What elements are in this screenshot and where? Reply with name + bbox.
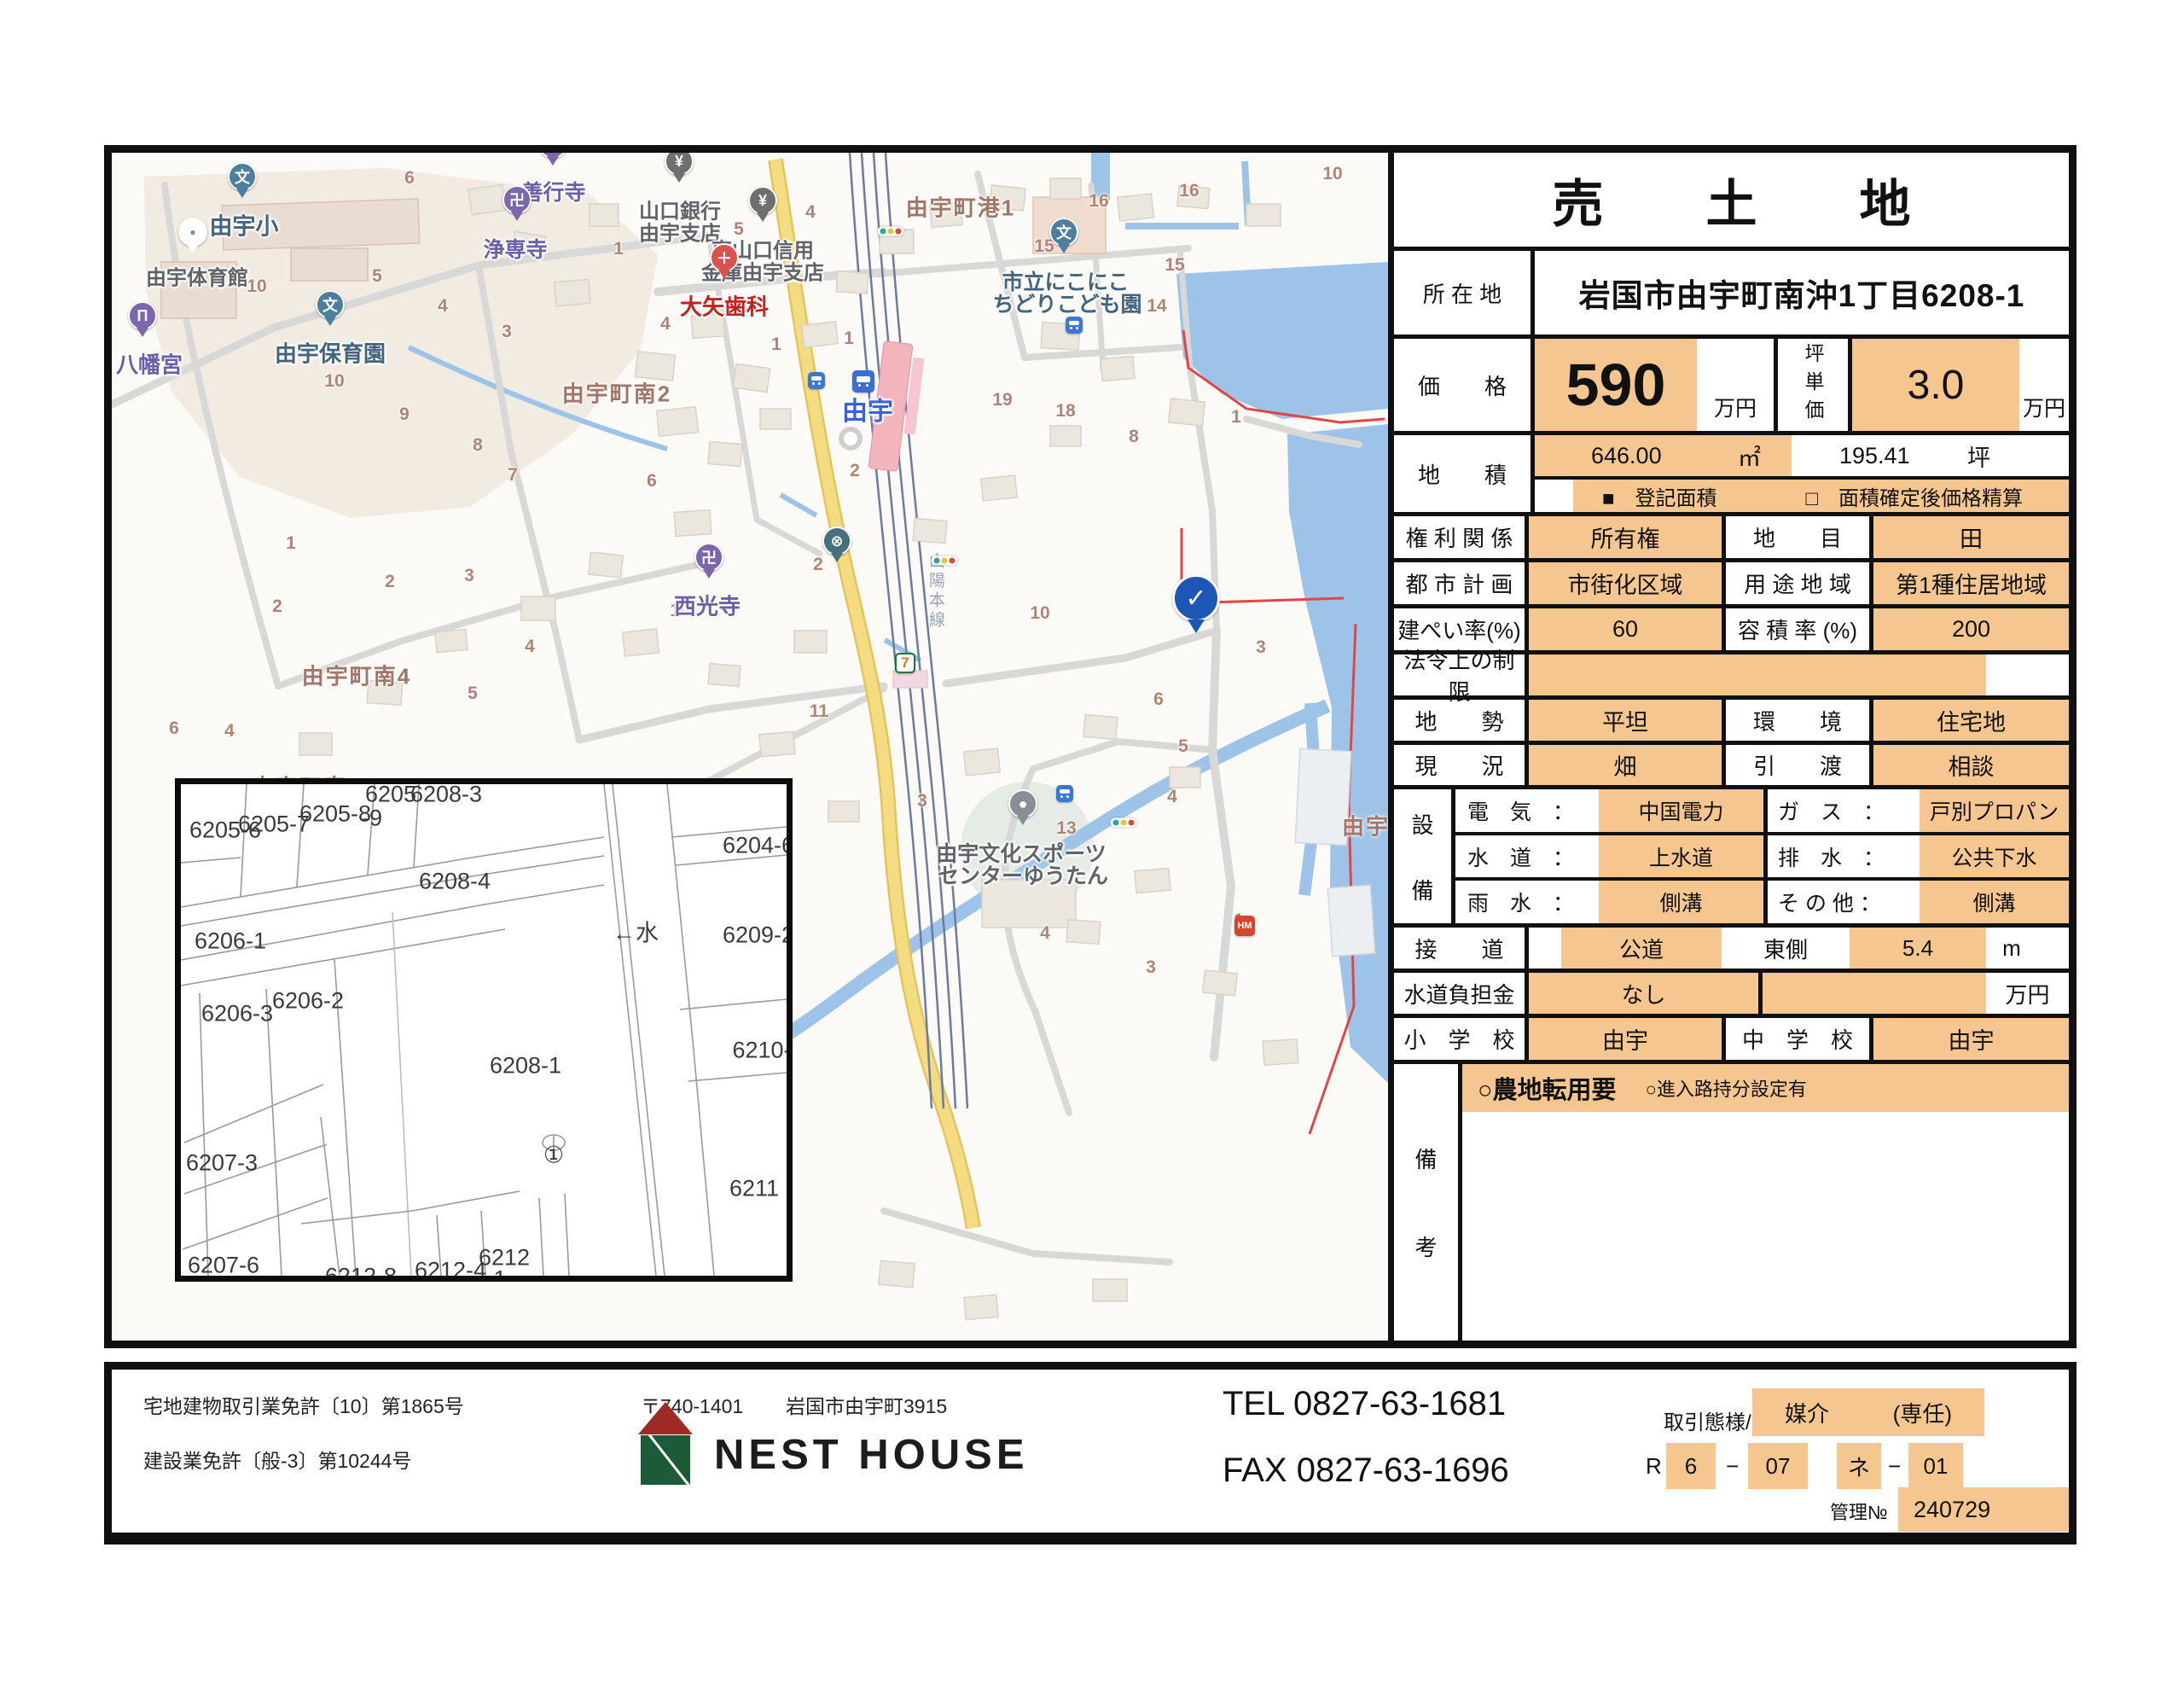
row-road: 接 道 公道 東側 5.4 m: [1394, 923, 2069, 969]
map-block-number: 10: [1322, 164, 1342, 184]
rights-value: 所有権: [1529, 516, 1722, 558]
map-block-number: 1: [1231, 407, 1241, 428]
poi-label: 由宇保育園: [275, 337, 386, 369]
utility-row-water: 水 道 ： 上水道 排 水 ： 公共下水: [1455, 832, 2069, 878]
map-block-number: 1: [771, 334, 781, 355]
parcel-number-label: 6211: [729, 1176, 779, 1202]
bus-stop-icon: [808, 372, 825, 389]
map-block-number: 4: [805, 202, 816, 223]
deal-type: 媒介: [1785, 1397, 1829, 1428]
map-block-number: 18: [1055, 401, 1075, 422]
poi-label: 由宇支店: [639, 217, 721, 247]
law-value: [1529, 654, 1986, 695]
map-block-number: 16: [1179, 181, 1199, 201]
deal-type-label: 取引態様/: [1664, 1405, 1751, 1435]
row-utilities: 設備 電 気 ： 中国電力 ガ ス ： 戸別プロパン 水 道 ： 上水道 排 水…: [1394, 785, 2069, 923]
juniorhigh-value: 由宇: [1873, 1018, 2069, 1060]
elementary-value: 由宇: [1529, 1018, 1722, 1060]
traffic-light-icon: [878, 227, 904, 236]
map-block-number: 10: [1030, 603, 1049, 624]
code-r: R: [1646, 1453, 1662, 1480]
parcel-number-label: ←水: [613, 915, 659, 948]
terrain-label: 地 勢: [1394, 700, 1529, 741]
map-block-number: 1: [844, 329, 854, 349]
poi-label: 大矢歯科: [680, 290, 769, 322]
code-month: 07: [1748, 1443, 1808, 1489]
utility-row-electric: 電 気 ： 中国電力 ガ ス ： 戸別プロパン: [1455, 789, 2069, 832]
status-value: 畑: [1529, 745, 1722, 785]
fee-label: 水道負担金: [1394, 973, 1529, 1014]
drainage-value: 公共下水: [1920, 835, 2069, 878]
school-pin-yuu-elementary: 文: [228, 162, 257, 198]
remarks-band: ○農地転用要 ○進入路持分設定有: [1462, 1064, 2069, 1112]
map-block-number: 15: [1165, 255, 1184, 276]
remarks-note-1: ○農地転用要: [1478, 1070, 1617, 1106]
other-value: 側溝: [1920, 881, 2069, 923]
parcel-number-label: -9: [362, 806, 382, 832]
parcel-number-label: 6208-3: [410, 782, 482, 808]
deal-type-band: 媒介 (専任): [1752, 1388, 1984, 1436]
parcel-number-label: 6205: [365, 782, 416, 808]
deal-subtype: (専任): [1893, 1397, 1952, 1428]
poi-label: 八幡宮: [116, 348, 183, 380]
electric-label: 電 気 ：: [1455, 789, 1599, 832]
row-remarks: 備考 ○農地転用要 ○進入路持分設定有: [1394, 1060, 2069, 1341]
map-area-label: 由宇町南2: [562, 377, 671, 409]
row-area: 地 積 646.00 ㎡ 195.41 坪 ■ 登記面積: [1394, 431, 2069, 512]
fee-value: なし: [1529, 973, 1763, 1014]
map-block-number: 6: [1153, 689, 1164, 710]
road-width: 5.4: [1850, 928, 1986, 969]
panel-title-row: 売 土 地: [1394, 153, 2069, 247]
tsubo-value: 3.0: [1852, 339, 2019, 431]
parcel-number-label: ①: [543, 1143, 564, 1169]
parcel-number-label: 6209-2: [723, 922, 793, 949]
main-frame: 由宇町港1由宇町南2由宇町南4由宇町南3由宇654101021345411762…: [104, 145, 2077, 1348]
parcel-number-label: 1: [493, 1266, 506, 1283]
map-block-number: 19: [992, 390, 1012, 410]
property-location-marker: ✓: [1172, 574, 1220, 633]
water-label: 水 道 ：: [1455, 835, 1599, 878]
map-block-number: 11: [810, 701, 828, 722]
gym-pin: ●: [178, 218, 207, 253]
terrain-value: 平坦: [1529, 700, 1722, 741]
property-panel: 売 土 地 所 在 地 岩国市由宇町南沖1丁目6208-1 価 格 590 万円…: [1388, 153, 2069, 1341]
traffic-light-icon: [932, 556, 958, 566]
location-label: 所 在 地: [1394, 251, 1535, 334]
bank-pin-shinyokinko: ¥: [748, 186, 777, 222]
electric-value: 中国電力: [1599, 789, 1768, 832]
utilities-label: 設備: [1394, 789, 1455, 923]
area-tsubo-unit: 坪: [1967, 439, 1990, 473]
page-title: 売 土 地: [1527, 163, 1937, 237]
mgmt-no-band: 240729: [1898, 1487, 2069, 1532]
parcel-number-label: 6207-6: [188, 1253, 259, 1279]
mgmt-no: 240729: [1914, 1497, 1990, 1523]
handover-value: 相談: [1873, 745, 2069, 785]
landcat-value: 田: [1873, 516, 2069, 558]
parcel-number-label: 6206-2: [272, 988, 344, 1015]
rainwater-label: 雨 水 ：: [1455, 881, 1599, 923]
area-checkboxes: ■ 登記面積 □ 面積確定後価格精算: [1573, 480, 2069, 512]
school-pin-hoikuen: 文: [316, 290, 345, 326]
fee-unit: 万円: [1986, 973, 2069, 1014]
checkbox-registered-area: ■ 登記面積: [1602, 481, 1717, 511]
map-block-number: 9: [399, 404, 409, 425]
map-block-number: 4: [224, 721, 235, 742]
poi-label: 浄専寺: [483, 233, 547, 264]
map-block-number: 2: [385, 572, 395, 592]
poi-pin: ⊗: [822, 526, 851, 562]
company-address: 岩国市由宇町3915: [786, 1390, 947, 1419]
sports-center-pin: ●: [1008, 789, 1037, 825]
row-price: 価 格 590 万円 坪単価 3.0 万円: [1394, 334, 2069, 431]
map-block-number: 13: [1056, 818, 1076, 839]
map-block-number: 5: [1178, 736, 1188, 757]
price-value: 590: [1535, 339, 1697, 431]
map-block-number: 6: [169, 718, 179, 739]
poi-label: 西光寺: [674, 590, 741, 621]
remarks-note-2: ○進入路持分設定有: [1646, 1074, 1807, 1102]
row-location: 所 在 地 岩国市由宇町南沖1丁目6208-1: [1394, 247, 2069, 334]
road-side: 東側: [1722, 928, 1850, 969]
code-dash-2: −: [1888, 1453, 1901, 1480]
map-block-number: 10: [247, 276, 266, 297]
map-block-number: 3: [464, 566, 474, 586]
traffic-light-icon: [1111, 818, 1137, 828]
map-block-number: 14: [1147, 296, 1166, 317]
map-block-number: 5: [468, 684, 478, 704]
map-block-number: 3: [1256, 637, 1266, 658]
area-label: 地 積: [1394, 435, 1535, 512]
tel-number: TEL 0827-63-1681: [1223, 1385, 1506, 1423]
tsubo-unit: 万円: [2019, 339, 2069, 431]
license-1: 宅地建物取引業免許〔10〕第1865号: [143, 1390, 464, 1419]
map-block-number: 6: [404, 168, 415, 189]
seven-eleven-icon: 7: [895, 653, 915, 673]
parcel-number-label: 6210-: [732, 1038, 791, 1064]
code-serial: 01: [1908, 1443, 1963, 1489]
map-block-number: 4: [525, 637, 535, 657]
school-pin-kodomoen: 文: [1049, 218, 1078, 253]
map-block-number: 4: [660, 314, 671, 334]
temple-pin-zenkoji: 卍: [538, 153, 567, 166]
map-block-number: 1: [613, 239, 624, 259]
parcel-number-label: 6212-8: [325, 1264, 397, 1283]
water-value: 上水道: [1599, 835, 1768, 878]
row-cityplan: 都 市 計 画 市街化区域 用 途 地 域 第1種住居地域: [1394, 558, 2069, 604]
map-block-number: 7: [508, 465, 518, 486]
elementary-label: 小 学 校: [1394, 1018, 1529, 1060]
checkbox-price-settlement: □ 面積確定後価格精算: [1806, 481, 2024, 511]
logo-roof: [638, 1402, 693, 1434]
map-block-number: 10: [324, 371, 344, 392]
bank-pin-yamaguchi: ¥: [665, 153, 694, 183]
mgmt-no-label: 管理№: [1830, 1498, 1888, 1525]
map-area-label: 由宇町港1: [906, 191, 1015, 223]
map-block-number: 6: [647, 471, 657, 492]
map-block-number: 1: [286, 533, 296, 554]
row-fee: 水道負担金 なし 万円: [1394, 969, 2069, 1014]
row-law: 法令上の制限: [1394, 650, 2069, 695]
bus-stop-icon: [1066, 317, 1083, 334]
gas-label: ガ ス ：: [1768, 789, 1920, 832]
poi-label: センターゆうたん: [938, 859, 1108, 890]
parcel-number-label: 6208-4: [419, 869, 491, 895]
landcat-label: 地 目: [1722, 516, 1873, 558]
code-year: 6: [1666, 1443, 1716, 1489]
status-label: 現 況: [1394, 745, 1529, 785]
map-block-number: 8: [473, 435, 483, 456]
parcel-number-label: 6207-3: [186, 1150, 258, 1177]
map-block-number: 8: [1129, 427, 1139, 447]
location-map: 由宇町港1由宇町南2由宇町南4由宇町南3由宇654101021345411762…: [112, 153, 1388, 1341]
zoning-value: 第1種住居地域: [1873, 562, 2069, 604]
station-icon-yuu: [852, 370, 874, 393]
juniorhigh-label: 中 学 校: [1722, 1018, 1873, 1060]
poi-label: 由宇: [842, 390, 893, 428]
shop-icon: HM: [1234, 916, 1255, 936]
poi-label: ちどりこども園: [992, 288, 1141, 318]
area-tsubo-cell: 195.41 坪: [1792, 435, 2069, 476]
law-label: 法令上の制限: [1394, 654, 1529, 695]
area-tsubo: 195.41: [1839, 443, 1910, 469]
tsubo-label: 坪単価: [1774, 339, 1852, 431]
parcel-number-label: 6206-1: [195, 928, 266, 955]
map-block-number: 3: [1146, 957, 1156, 978]
handover-label: 引 渡: [1722, 745, 1873, 785]
company-footer: 宅地建物取引業免許〔10〕第1865号 建設業免許〔般-3〕第10244号 〒7…: [104, 1362, 2077, 1544]
cityplan-value: 市街化区域: [1529, 562, 1722, 604]
map-block-number: 2: [272, 596, 282, 617]
bus-stop-icon: [1056, 785, 1073, 802]
map-block-number: 4: [1040, 923, 1050, 944]
fax-number: FAX 0827-63-1696: [1223, 1451, 1509, 1490]
poi-label: 由宇小: [210, 208, 279, 241]
map-block-number: 3: [917, 791, 927, 812]
environment-label: 環 境: [1722, 700, 1873, 741]
parcel-number-label: 6205-8: [299, 801, 371, 828]
rights-label: 権 利 関 係: [1394, 516, 1529, 558]
parcel-number-label: 6206-3: [201, 1001, 273, 1027]
drainage-label: 排 水 ：: [1768, 835, 1920, 878]
zoning-label: 用 途 地 域: [1722, 562, 1873, 604]
temple-pin-saikoji: 卍: [694, 543, 723, 579]
poi-label: 由宇体育館: [146, 261, 248, 291]
row-school: 小 学 校 由宇 中 学 校 由宇: [1394, 1014, 2069, 1060]
license-2: 建設業免許〔般-3〕第10244号: [143, 1445, 411, 1474]
map-block-number: 3: [502, 322, 512, 342]
area-sqm: 646.00: [1591, 443, 1662, 469]
floorratio-label: 容 積 率 (%): [1722, 608, 1873, 650]
nest-house-logo-icon: [638, 1402, 693, 1485]
rainwater-value: 側溝: [1599, 881, 1768, 923]
logo-body: [641, 1435, 690, 1485]
map-area-label: 由宇: [1342, 810, 1388, 841]
area-sqm-cell: 646.00 ㎡: [1535, 435, 1792, 476]
temple-pin-josenji: 卍: [502, 185, 531, 221]
price-unit: 万円: [1697, 339, 1774, 431]
other-label: そ の 他 ：: [1768, 881, 1920, 923]
cityplan-label: 都 市 計 画: [1394, 562, 1529, 604]
parcel-number-label: 6204-6: [723, 833, 793, 859]
floorratio-value: 200: [1873, 608, 2069, 650]
price-label: 価 格: [1394, 339, 1535, 431]
row-rights: 権 利 関 係 所有権 地 目 田: [1394, 512, 2069, 558]
road-unit: m: [1986, 928, 2037, 969]
shrine-pin: Π: [128, 301, 157, 337]
parcel-number-label: 6208-1: [490, 1053, 561, 1079]
map-block-number: 4: [1167, 787, 1177, 807]
area-sqm-unit: ㎡: [1738, 439, 1761, 473]
map-block-number: 5: [372, 266, 382, 287]
row-status: 現 況 畑 引 渡 相談: [1394, 741, 2069, 785]
location-value: 岩国市由宇町南沖1丁目6208-1: [1535, 251, 2069, 334]
coverage-value: 60: [1529, 608, 1722, 650]
gas-value: 戸別プロパン: [1920, 789, 2069, 832]
company-name: NEST HOUSE: [714, 1431, 1029, 1479]
cadastral-inset: 6205-66205-76205-86205-96208-36208-4←水62…: [175, 778, 793, 1282]
parcel-number-label: 6212-4: [415, 1258, 486, 1283]
inset-overlays: 6205-66205-76205-86205-96208-36208-4←水62…: [181, 784, 787, 1276]
remarks-label: 備考: [1394, 1064, 1462, 1341]
environment-value: 住宅地: [1873, 700, 2069, 741]
map-block-number: 16: [1089, 191, 1108, 212]
map-block-number: 2: [850, 461, 860, 481]
map-area-label: 由宇町南4: [302, 660, 411, 691]
road-type: 公道: [1561, 928, 1722, 969]
road-label: 接 道: [1394, 928, 1529, 969]
code-dash-1: −: [1726, 1453, 1739, 1480]
row-terrain: 地 勢 平坦 環 境 住宅地: [1394, 695, 2069, 741]
dental-pin: ＋: [710, 243, 739, 279]
map-block-number: 4: [438, 296, 448, 317]
code-kana: ネ: [1837, 1443, 1881, 1489]
utility-row-rain: 雨 水 ： 側溝 そ の 他 ： 側溝: [1455, 877, 2069, 923]
